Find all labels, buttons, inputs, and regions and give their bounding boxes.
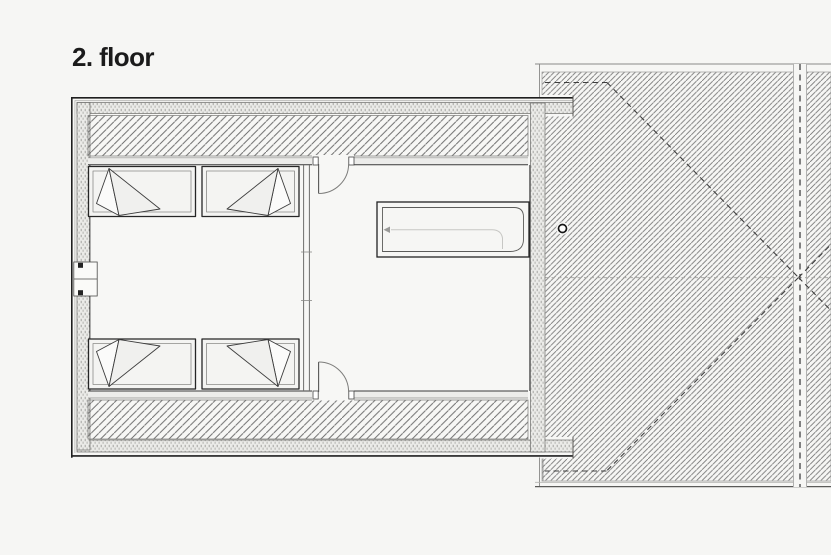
roof-drain-circle	[556, 222, 568, 234]
floor-plan-page: 2. floor	[0, 0, 831, 555]
bed-top-left	[89, 167, 196, 217]
right-wall-insulation	[531, 103, 546, 452]
top-wall-hatch	[88, 116, 528, 157]
top-lining-band	[88, 158, 528, 166]
bed-bottom-left	[89, 339, 196, 389]
window-jamb-bottom	[78, 290, 83, 295]
bottom-wall-hatch	[88, 400, 528, 439]
door-top-jamb-left	[313, 157, 318, 165]
bed-top-right	[202, 167, 299, 217]
bed-bottom-right	[202, 339, 299, 389]
window-left	[74, 262, 97, 296]
bottom-lining-band	[88, 391, 528, 399]
house	[72, 95, 573, 459]
door-bottom-jamb-right	[349, 391, 354, 399]
roof-drain	[559, 225, 567, 233]
roof-hatch-field	[542, 72, 831, 481]
bottom-wall-insulation	[77, 440, 573, 452]
door-bottom-jamb-left	[313, 391, 318, 399]
window-jamb-top	[78, 263, 83, 268]
top-wall-insulation	[77, 103, 573, 114]
roof-area	[535, 64, 831, 487]
bathtub	[377, 202, 529, 257]
door-top-jamb-right	[349, 157, 354, 165]
plan-title: 2. floor	[72, 44, 154, 70]
floor-plan-svg	[0, 0, 831, 555]
